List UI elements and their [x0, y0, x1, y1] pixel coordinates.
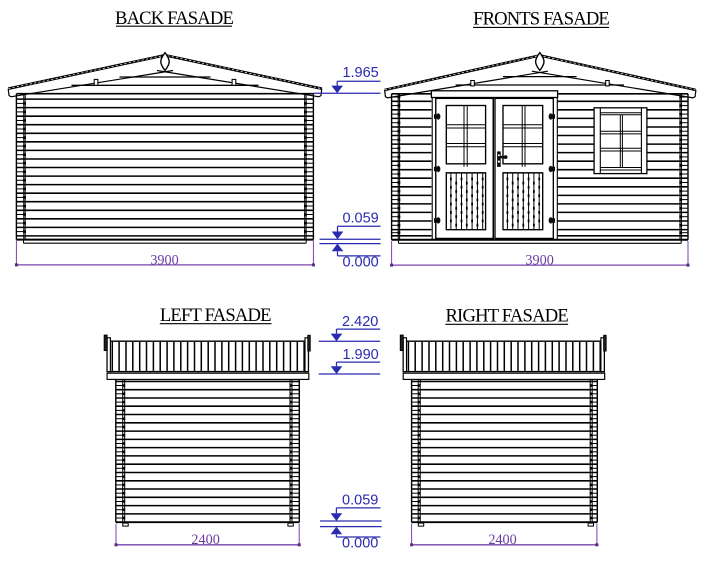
- svg-text:1.990: 1.990: [342, 347, 378, 363]
- svg-text:0.059: 0.059: [342, 492, 378, 508]
- svg-text:BACK FASADE: BACK FASADE: [115, 8, 233, 29]
- svg-text:RIGHT FASADE: RIGHT FASADE: [445, 305, 568, 326]
- svg-text:0.000: 0.000: [342, 254, 378, 270]
- svg-text:0.000: 0.000: [342, 535, 378, 551]
- svg-text:3900: 3900: [525, 253, 553, 269]
- svg-text:1.965: 1.965: [342, 65, 378, 81]
- svg-text:2.420: 2.420: [342, 314, 378, 330]
- svg-text:FRONTS FASADE: FRONTS FASADE: [473, 9, 609, 30]
- svg-text:0.059: 0.059: [342, 210, 378, 226]
- svg-text:LEFT FASADE: LEFT FASADE: [160, 305, 271, 326]
- svg-text:3900: 3900: [150, 252, 178, 268]
- svg-text:2400: 2400: [191, 532, 219, 548]
- svg-text:2400: 2400: [488, 532, 516, 548]
